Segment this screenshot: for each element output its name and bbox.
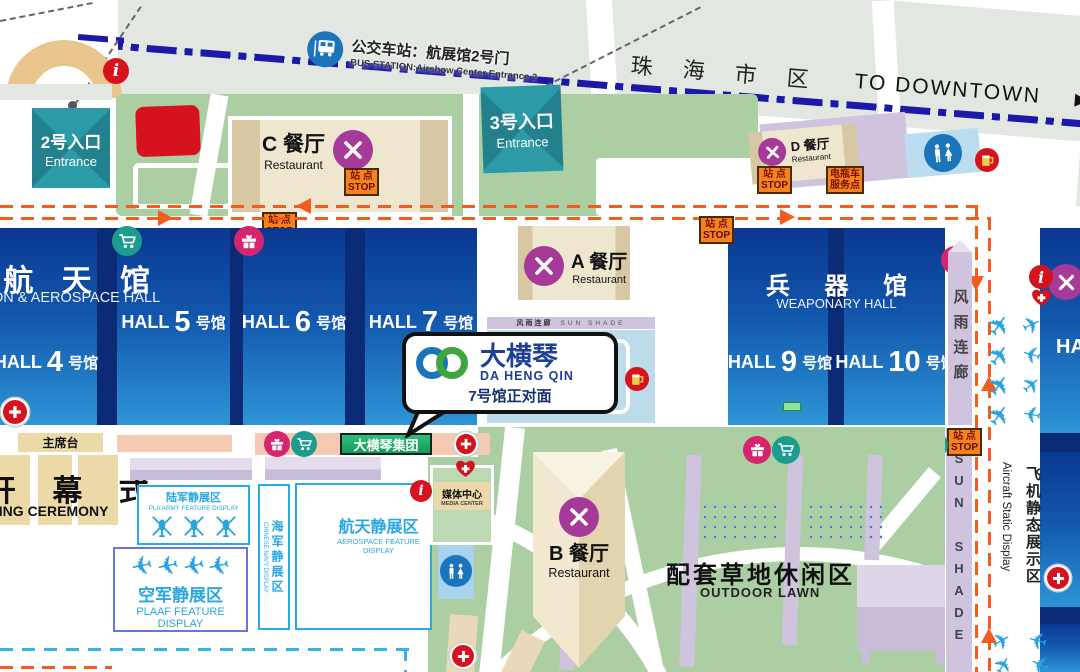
- walkway-salmon: [117, 435, 232, 452]
- route-line: [0, 217, 990, 220]
- entrance-3-label-zh: 3号入口: [489, 107, 554, 135]
- beer-icon: [625, 367, 649, 391]
- route-line: [0, 205, 977, 208]
- jet-icon: ✈: [206, 551, 233, 581]
- shop-cart-icon: [112, 226, 142, 256]
- info-icon: i: [103, 58, 129, 84]
- restaurant-a-label: A 餐厅 Restaurant: [524, 246, 627, 286]
- dahengqin-note: 7号馆正对面: [406, 385, 614, 406]
- seating-grid: [806, 502, 882, 542]
- outdoor-lawn: 配套草地休闲区 OUTDOOR LAWN B 餐厅 Restaurant: [428, 427, 945, 672]
- right-hall-band: [1040, 433, 1080, 452]
- rostrum-bar: 主席台: [18, 433, 103, 452]
- stop-en: STOP: [951, 442, 978, 453]
- restaurant-b-sub: Restaurant: [548, 566, 609, 580]
- airplane-icon: ✈: [982, 308, 1018, 343]
- shop-cart-icon: [291, 431, 317, 457]
- route-arrow-left: [296, 198, 311, 214]
- seating-grid: [700, 502, 778, 542]
- stop-zh: 站 点: [350, 171, 373, 182]
- info-glyph: i: [1038, 268, 1044, 287]
- navy-display-box: CHINESE NAVY DISPLAY 海军静展区: [258, 484, 290, 630]
- route-line: [988, 217, 991, 672]
- jet-icon: ✈: [1020, 403, 1043, 429]
- dahengqin-bubble: 大横琴 DA HENG QIN 7号馆正对面: [402, 332, 618, 414]
- stop-badge: 站 点 STOP: [947, 428, 982, 456]
- jet-icon: ✈: [1019, 342, 1044, 369]
- hall-6-label: HALL6号馆: [243, 306, 345, 339]
- restaurant-a-sub: Restaurant: [572, 274, 626, 286]
- jet-icon: ✈: [1017, 370, 1047, 400]
- corridor-cap: [948, 240, 972, 252]
- red-building: [135, 105, 201, 157]
- opening-ceremony-en: PENING CEREMONY: [0, 503, 108, 519]
- gift-icon: [234, 226, 264, 256]
- info-icon: i: [410, 480, 432, 502]
- aerospace-display-zh: 航天静展区: [327, 513, 430, 537]
- gift-icon: [264, 431, 290, 457]
- restroom-icon: [922, 132, 963, 173]
- bubble-tail: [404, 408, 452, 438]
- airforce-display-en: PLAAF FEATURE DISPLAY: [115, 606, 246, 630]
- entrance-2-marker: 2号入口 Entrance: [32, 108, 110, 188]
- restaurant-icon: [333, 130, 373, 170]
- entrance-3-label-en: Entrance: [496, 134, 549, 151]
- hall-separator: [828, 228, 844, 425]
- shade-bar: [265, 457, 381, 480]
- sunshade-strip-en: SUN SHADE: [561, 320, 626, 327]
- navy-display-zh: 海军静展区: [269, 520, 286, 595]
- bus-icon: [306, 30, 345, 69]
- jet-icon: ✈: [989, 651, 1019, 672]
- stop-en: STOP: [761, 180, 788, 191]
- stop-en: STOP: [348, 182, 375, 193]
- stop-zh: 站 点: [705, 219, 728, 230]
- airplane-icon: ✈: [982, 398, 1018, 433]
- walkway-bar: [0, 84, 112, 100]
- entrance-2-label-en: Entrance: [45, 154, 97, 169]
- restaurant-c-sub: Restaurant: [264, 158, 323, 172]
- medical-cross-icon: [450, 643, 476, 669]
- corridor-vertical: 风雨连廊: [948, 252, 972, 425]
- jet-icon: ✈: [180, 551, 207, 581]
- first-aid-heart-icon: [455, 459, 476, 483]
- airforce-display-box: ✈ ✈ ✈ ✈ 空军静展区 PLAAF FEATURE DISPLAY: [113, 547, 248, 632]
- weaponry-hall-building: 兵 器 馆 WEAPONARY HALL HALL9号馆 HALL10号馆: [728, 228, 945, 425]
- stop-badge: 站 点 STOP: [699, 216, 734, 244]
- medical-cross-icon: [1045, 565, 1071, 591]
- aerospace-display-box: 航天静展区 AEROSPACE FEATURE DISPLAY: [295, 483, 432, 630]
- army-display-zh: 陆军静展区: [139, 489, 248, 505]
- restaurant-b-name: B 餐厅: [549, 537, 609, 566]
- medical-cross-icon: [1, 398, 29, 426]
- lawn-label-en: OUTDOOR LAWN: [700, 585, 820, 600]
- shop-cart-icon: [772, 436, 800, 464]
- weaponry-hall-title-en: WEAPONARY HALL: [728, 296, 945, 311]
- restroom-icon: [440, 555, 472, 587]
- jet-icon: ✈: [154, 551, 181, 581]
- entrance-2-label-zh: 2号入口: [41, 128, 101, 153]
- aircraft-display-label-en: Aircraft Static Display: [1000, 462, 1012, 632]
- gift-icon: [743, 436, 771, 464]
- helicopter-icon: [150, 514, 174, 538]
- army-display-box: 陆军静展区 PLA ARMY FEATURE DISPLAY: [137, 485, 250, 545]
- restaurant-icon: [524, 246, 564, 286]
- downtown-arrow-icon: ▶: [1074, 90, 1080, 111]
- restaurant-c-label: C 餐厅 Restaurant: [262, 128, 373, 172]
- dahengqin-logo-icon: [416, 345, 472, 381]
- jet-icon: ✈: [128, 551, 155, 581]
- hall-9-label: HALL9号馆: [732, 346, 828, 379]
- stop-zh: 站 点: [953, 431, 976, 442]
- sunshade-strip-horizontal: 风雨连廊 SUN SHADE: [487, 317, 655, 329]
- hall-4-label: HALL4号馆: [0, 346, 96, 379]
- stop-badge: 站 点 STOP: [757, 166, 792, 194]
- airplane-icon: ✈: [982, 338, 1018, 373]
- restroom-sign: [438, 543, 474, 599]
- dahengqin-brand-en: DA HENG QIN: [480, 369, 574, 383]
- path-gap: [463, 94, 479, 216]
- right-hall-band: [1040, 607, 1080, 624]
- jet-icon: ✈: [1018, 311, 1045, 340]
- cart-service-badge: 电瓶车 服务点: [826, 166, 864, 194]
- boundary-line-cyan: [0, 648, 410, 651]
- bus-station: 公交车站：航展馆2号门 BUS STATION:Airshow Center E…: [306, 30, 540, 84]
- jet-icon: ✈: [1026, 651, 1053, 672]
- army-display-en: PLA ARMY FEATURE DISPLAY: [139, 505, 248, 512]
- stop-badge: 站 点 STOP: [344, 168, 379, 196]
- outlined-building: [133, 163, 233, 209]
- airplane-icon: ✈: [982, 368, 1018, 403]
- hall-separator: [345, 228, 365, 425]
- restaurant-a-name: A 餐厅: [571, 247, 627, 274]
- stop-zh: 站 点: [763, 169, 786, 180]
- restaurant-c-name: C 餐厅: [262, 128, 325, 158]
- entrance-3-marker: 3号入口 Entrance: [481, 85, 564, 174]
- restaurant-icon: [757, 137, 787, 167]
- hall-5-label: HALL5号馆: [117, 306, 230, 339]
- sunshade-vertical: SUN SHADE: [946, 428, 972, 672]
- info-glyph: i: [113, 61, 119, 81]
- aerospace-display-en: AEROSPACE FEATURE DISPLAY: [327, 537, 430, 555]
- jet-cluster: ✈ ✈ ✈ ✈: [992, 630, 1062, 672]
- beer-icon: [975, 148, 999, 172]
- route-arrow-right: [780, 209, 795, 225]
- medical-cross-icon: [454, 432, 478, 456]
- restaurant-icon: [1048, 264, 1080, 300]
- boundary-line-cyan: [404, 648, 407, 672]
- aerospace-hall-title-en: ON & AEROSPACE HALL: [0, 290, 160, 306]
- sunshade-strip-zh: 风雨连廊: [517, 318, 553, 328]
- jet-icon: ✈: [988, 627, 1016, 657]
- media-center-zh: 媒体中心: [442, 486, 482, 501]
- cart-service-zh2: 服务点: [830, 180, 860, 191]
- stop-en: STOP: [703, 230, 730, 241]
- airshow-map: 珠 海 市 区 TO DOWNTOWN ▶ 公交车站：航展馆2号门 BUS ST…: [0, 0, 1080, 672]
- pavilion: [857, 565, 945, 665]
- navy-display-en: CHINESE NAVY DISPLAY: [262, 522, 268, 593]
- info-icon: i: [1029, 265, 1053, 289]
- restroom-sign: [904, 128, 982, 178]
- sunshade-vertical-label: SUN SHADE: [952, 451, 967, 649]
- info-glyph: i: [418, 483, 423, 499]
- boundary-line-orange: [0, 666, 112, 669]
- dahengqin-brand-zh: 大横琴: [480, 343, 574, 369]
- aircraft-grid: ✈ ✈ ✈ ✈ ✈ ✈ ✈ ✈: [988, 312, 1052, 432]
- restaurant-icon: [559, 497, 599, 537]
- micro-badge: [783, 402, 801, 411]
- helicopter-icon: [182, 514, 206, 538]
- corridor-vertical-label: 风雨连廊: [950, 289, 971, 389]
- media-center-sign: 媒体中心 MEDIA CENTER: [434, 482, 490, 510]
- shade-bar: [130, 458, 252, 480]
- airforce-display-zh: 空军静展区: [115, 581, 246, 606]
- restaurant-b-label: B 餐厅 Restaurant: [533, 537, 625, 580]
- hall-10-label: HALL10号馆: [846, 346, 945, 379]
- media-center-en: MEDIA CENTER: [441, 501, 483, 507]
- rostrum-label: 主席台: [42, 434, 78, 451]
- helicopter-icon: [214, 514, 238, 538]
- aircraft-display-label-zh: 飞机静态展示区: [1022, 466, 1043, 626]
- route-arrow-right: [158, 210, 173, 226]
- cart-service-zh1: 电瓶车: [830, 169, 860, 180]
- right-hall-label: HA: [1056, 336, 1080, 359]
